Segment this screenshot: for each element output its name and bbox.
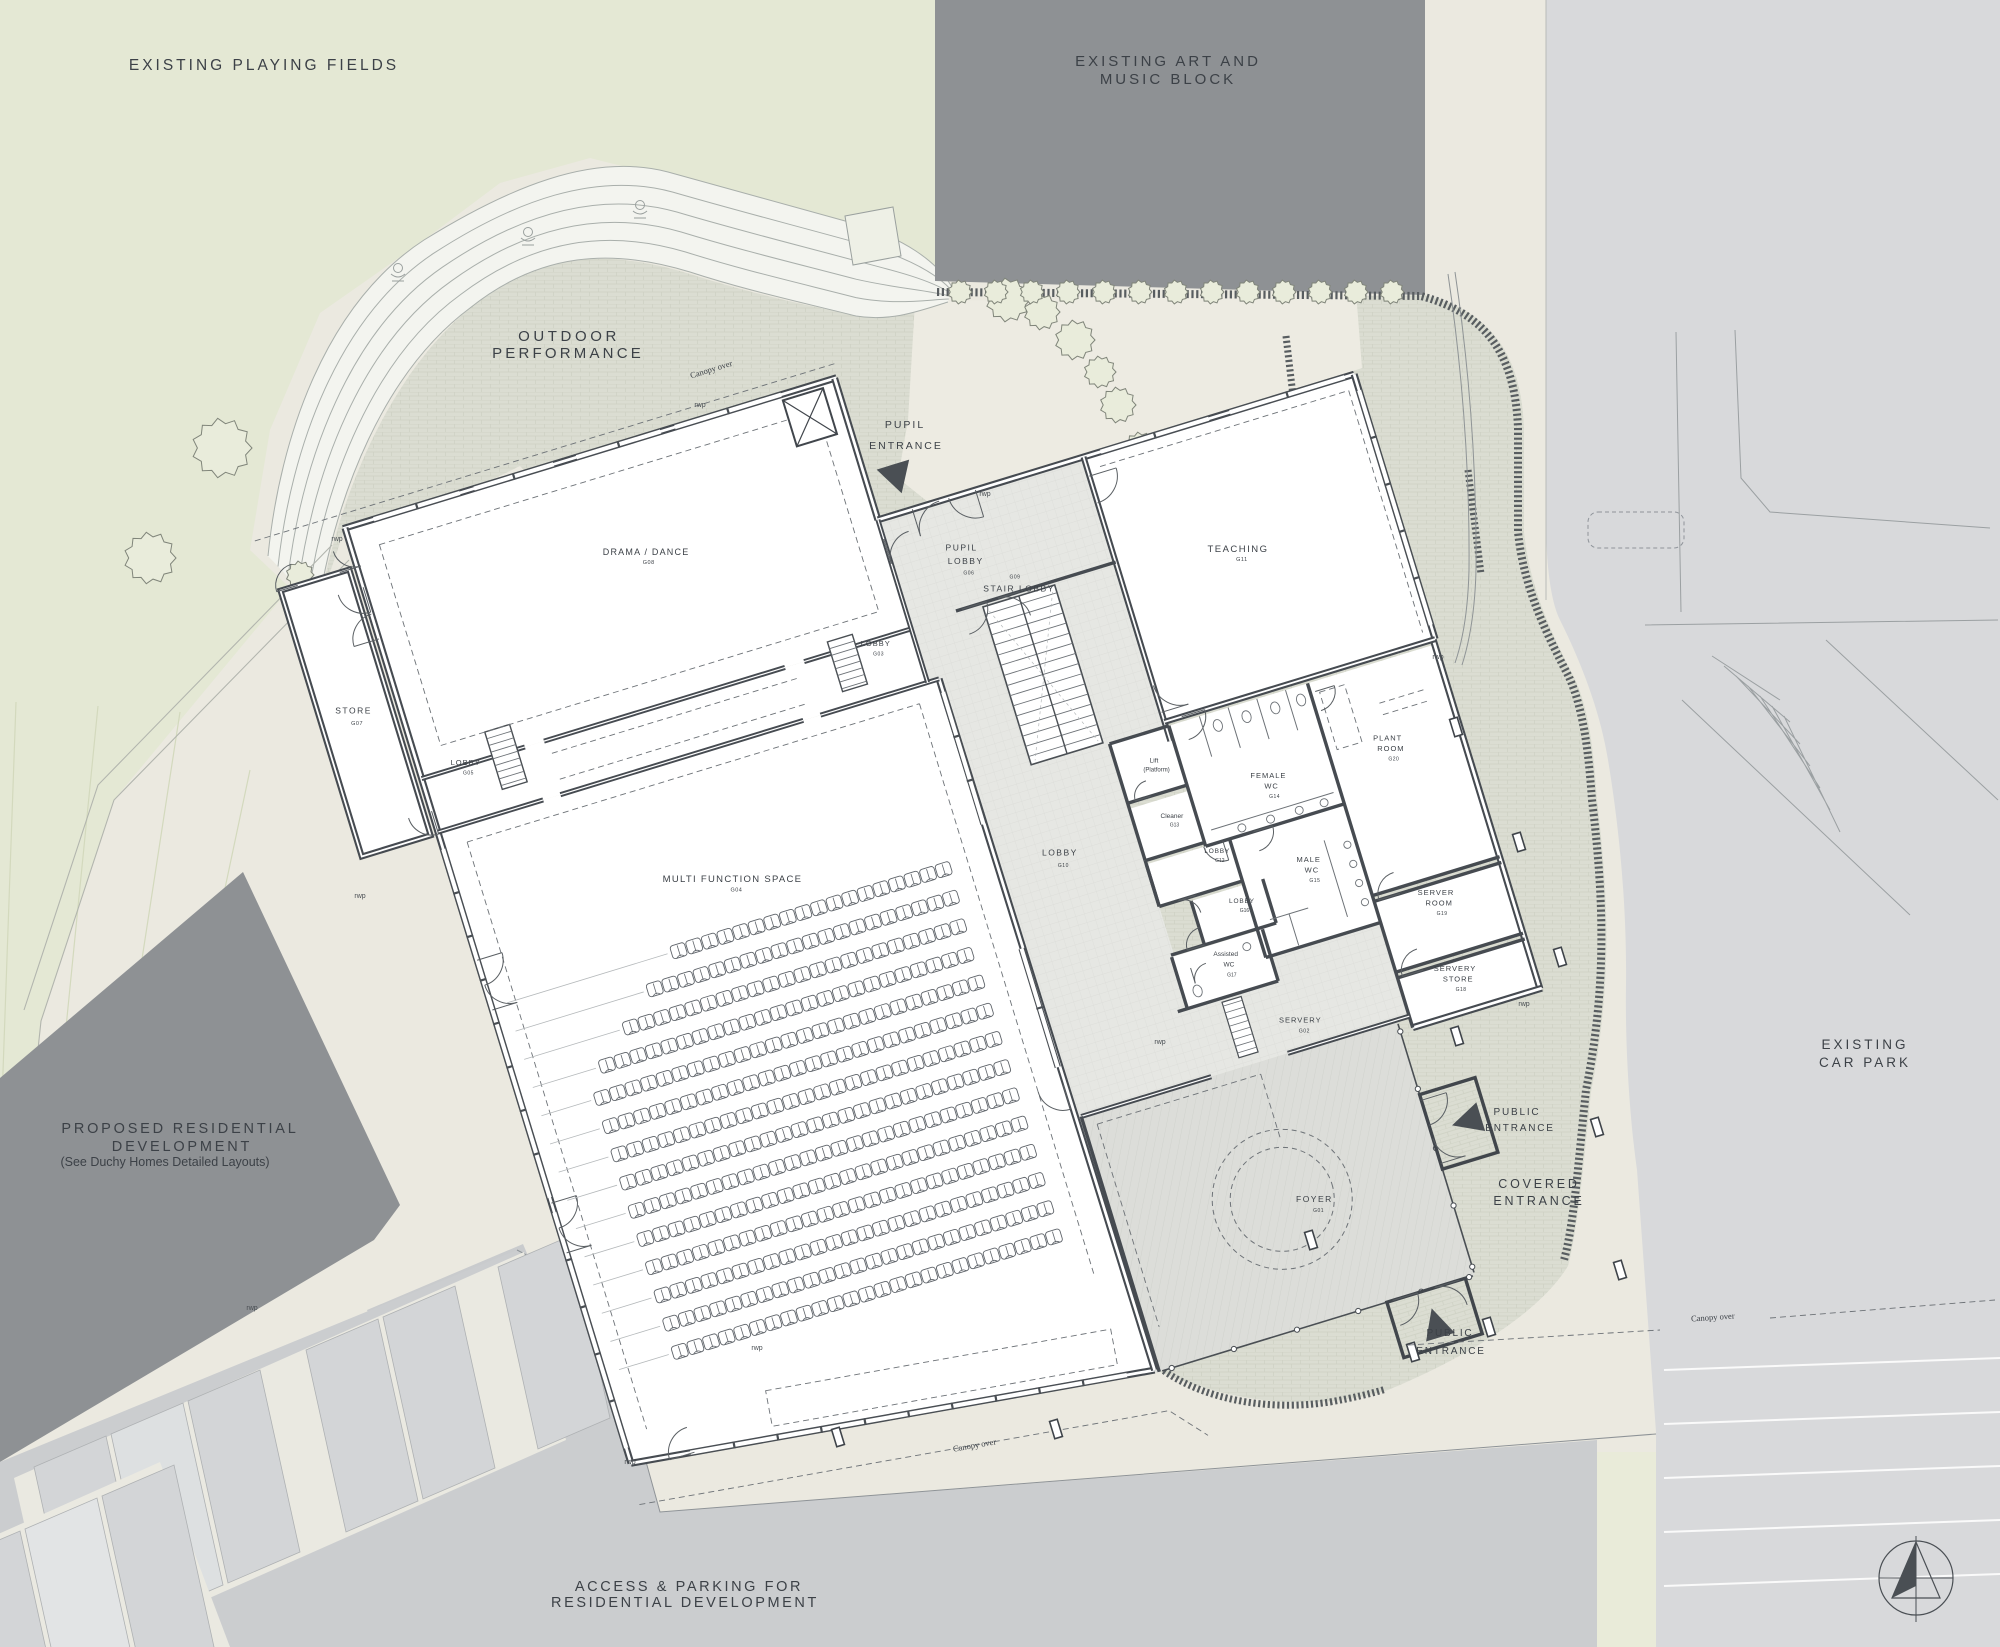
- svg-text:COVERED: COVERED: [1498, 1177, 1579, 1191]
- svg-text:ENTRANCE: ENTRANCE: [869, 440, 943, 452]
- svg-text:PUBLIC: PUBLIC: [1494, 1107, 1541, 1118]
- svg-text:OUTDOOR: OUTDOOR: [518, 328, 620, 345]
- svg-text:STAIR LOBBY: STAIR LOBBY: [983, 584, 1055, 594]
- svg-text:ENTRANCE: ENTRANCE: [1493, 1194, 1584, 1208]
- svg-text:EXISTING ART AND: EXISTING ART AND: [1075, 53, 1261, 70]
- svg-text:RESIDENTIAL DEVELOPMENT: RESIDENTIAL DEVELOPMENT: [551, 1595, 819, 1611]
- svg-text:G03: G03: [873, 652, 884, 658]
- svg-text:G10: G10: [1058, 863, 1069, 869]
- svg-text:ROOM: ROOM: [1426, 899, 1453, 908]
- svg-text:G08: G08: [643, 560, 655, 566]
- svg-text:PROPOSED RESIDENTIAL: PROPOSED RESIDENTIAL: [61, 1121, 298, 1137]
- svg-text:Lift: Lift: [1150, 758, 1159, 765]
- svg-text:Cleaner: Cleaner: [1161, 813, 1185, 820]
- svg-text:DRAMA / DANCE: DRAMA / DANCE: [603, 547, 690, 557]
- svg-text:SERVERY: SERVERY: [1434, 964, 1477, 973]
- svg-text:G01: G01: [1313, 1208, 1324, 1214]
- svg-text:MUSIC BLOCK: MUSIC BLOCK: [1100, 71, 1236, 88]
- svg-text:FOYER: FOYER: [1296, 1194, 1333, 1204]
- svg-text:MALE: MALE: [1296, 855, 1320, 864]
- svg-text:rwp: rwp: [1432, 654, 1443, 661]
- svg-text:SERVER: SERVER: [1418, 888, 1455, 897]
- svg-text:G20: G20: [1388, 757, 1399, 763]
- svg-text:WC: WC: [1264, 782, 1279, 791]
- svg-text:PLANT: PLANT: [1373, 733, 1402, 742]
- svg-text:G07: G07: [351, 721, 363, 727]
- svg-text:ENTRANCE: ENTRANCE: [1416, 1346, 1485, 1357]
- svg-text:PUBLIC: PUBLIC: [1427, 1328, 1474, 1339]
- svg-text:rwp: rwp: [331, 536, 342, 543]
- svg-text:PUPIL: PUPIL: [885, 419, 925, 431]
- svg-text:G19: G19: [1437, 911, 1448, 917]
- svg-text:PUPIL: PUPIL: [946, 543, 978, 553]
- svg-text:MULTI FUNCTION SPACE: MULTI FUNCTION SPACE: [663, 874, 803, 885]
- svg-text:PERFORMANCE: PERFORMANCE: [492, 345, 644, 362]
- svg-text:G11: G11: [1236, 557, 1248, 563]
- svg-text:G17: G17: [1227, 972, 1237, 978]
- svg-text:rwp: rwp: [694, 402, 705, 409]
- svg-text:rwp: rwp: [979, 491, 990, 498]
- svg-text:LOBBY: LOBBY: [948, 556, 984, 566]
- svg-text:G14: G14: [1269, 794, 1280, 800]
- svg-text:DEVELOPMENT: DEVELOPMENT: [112, 1139, 252, 1155]
- svg-text:LOBBY: LOBBY: [1229, 898, 1255, 905]
- svg-text:ACCESS & PARKING FOR: ACCESS & PARKING FOR: [575, 1579, 803, 1595]
- svg-text:CAR PARK: CAR PARK: [1819, 1055, 1911, 1070]
- svg-text:G16: G16: [1240, 908, 1250, 914]
- svg-text:G05: G05: [463, 771, 474, 777]
- svg-text:STORE: STORE: [1443, 974, 1474, 983]
- svg-text:(Platform): (Platform): [1143, 767, 1169, 773]
- svg-text:LOBBY: LOBBY: [1042, 847, 1078, 857]
- svg-text:FEMALE: FEMALE: [1250, 771, 1286, 780]
- svg-text:SERVERY: SERVERY: [1279, 1015, 1322, 1024]
- svg-text:LOBBY: LOBBY: [861, 639, 891, 648]
- svg-text:rwp: rwp: [354, 893, 365, 900]
- svg-text:G09: G09: [1010, 574, 1021, 580]
- svg-text:LOBBY: LOBBY: [1204, 848, 1230, 855]
- svg-text:rwp: rwp: [1154, 1039, 1165, 1046]
- svg-text:G13: G13: [1170, 823, 1180, 829]
- svg-text:rwp: rwp: [246, 1305, 257, 1312]
- svg-text:G04: G04: [730, 888, 742, 894]
- svg-text:G15: G15: [1309, 878, 1320, 884]
- svg-text:G06: G06: [963, 571, 974, 577]
- svg-text:G02: G02: [1299, 1029, 1310, 1035]
- svg-text:EXISTING: EXISTING: [1821, 1037, 1908, 1052]
- svg-text:rwp: rwp: [751, 1345, 762, 1352]
- svg-text:WC: WC: [1305, 865, 1320, 874]
- svg-text:rwp: rwp: [624, 1459, 635, 1466]
- svg-text:G12: G12: [1215, 858, 1225, 864]
- svg-text:ROOM: ROOM: [1377, 744, 1404, 753]
- svg-text:rwp: rwp: [1518, 1001, 1529, 1008]
- svg-text:STORE: STORE: [335, 706, 372, 716]
- svg-text:G18: G18: [1456, 987, 1467, 993]
- svg-text:ENTRANCE: ENTRANCE: [1485, 1123, 1554, 1134]
- svg-text:Assisted: Assisted: [1213, 951, 1238, 958]
- svg-text:WC: WC: [1223, 962, 1234, 969]
- svg-text:TEACHING: TEACHING: [1207, 544, 1268, 555]
- svg-text:LOBBY: LOBBY: [451, 758, 481, 767]
- svg-text:EXISTING PLAYING FIELDS: EXISTING PLAYING FIELDS: [129, 57, 399, 74]
- svg-text:(See Duchy Homes Detailed Layo: (See Duchy Homes Detailed Layouts): [60, 1155, 269, 1169]
